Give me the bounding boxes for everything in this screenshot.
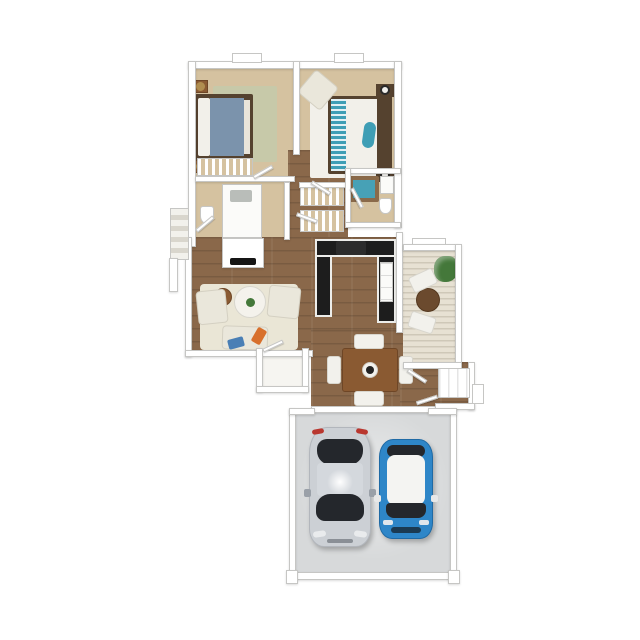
living-room-armchair-left [195, 289, 228, 326]
dining-chair-top [354, 334, 384, 349]
garage-door-post-right [448, 570, 460, 584]
blue-car-roof-panel [387, 455, 425, 505]
wall-garage-bottom [289, 572, 457, 580]
wall-garage-left [289, 408, 296, 580]
kitchen-counter-left [315, 255, 332, 317]
blue-car-mirror-left [374, 495, 381, 502]
entry-closet [438, 368, 470, 398]
garage-door-post-left [286, 570, 298, 584]
wall-kitchen-right [396, 232, 403, 333]
exterior-steps-railing [169, 258, 178, 292]
living-room-armchair-right [266, 284, 301, 319]
dining-chair-bottom [354, 391, 384, 406]
blue-car-windshield [386, 503, 426, 518]
bedroom-1-pillows [198, 98, 210, 156]
wall-bedroom-divider [293, 61, 300, 155]
wall-right-upper [394, 61, 402, 228]
wall-living-bottom [185, 350, 313, 357]
coffee-table-plant [246, 298, 255, 307]
dining-centerpiece [366, 366, 374, 374]
sedan-rear-window [317, 439, 363, 465]
bathroom-2-toilet [379, 198, 392, 214]
wall-bathroom-2-bottom [345, 222, 401, 228]
bedroom-1-foot-blanket [244, 100, 250, 154]
wall-bathroom-2-left [345, 168, 351, 228]
sedan-mirror-left [304, 489, 311, 497]
bathroom-1-sink [230, 190, 252, 202]
wall-patio-top [403, 244, 459, 251]
blue-compact-car [379, 439, 433, 539]
bathroom-2-vanity [380, 176, 394, 194]
blue-car-headlight-left [383, 520, 393, 525]
fireplace-opening [230, 258, 256, 265]
wall-dining-bottom [311, 406, 437, 413]
blue-car-headlight-right [419, 520, 429, 525]
wall-left-upper [188, 61, 196, 247]
wall-garage-top-right [428, 408, 457, 415]
kitchen-stove [336, 241, 366, 255]
bedroom-1-duvet [210, 98, 244, 156]
silver-sedan [309, 427, 371, 547]
wall-garage-top-left [289, 408, 315, 415]
wall-patio-right [455, 244, 462, 369]
entry-exterior-step [472, 384, 484, 404]
floor-plan-canvas [0, 0, 640, 640]
wall-bedroom-2-bottom [299, 182, 351, 188]
window-bedroom-1 [232, 53, 262, 63]
wall-bathroom-1-right [284, 182, 290, 240]
window-bedroom-2 [334, 53, 364, 63]
kitchen-appliance-stack [380, 262, 393, 302]
exterior-steps-left [170, 208, 189, 260]
patio-table [416, 288, 440, 312]
wall-bedroom-1-bottom [195, 176, 295, 182]
sedan-roof-glare [327, 469, 353, 495]
sedan-grille [327, 539, 353, 543]
wall-bathroom-2-top [345, 168, 401, 174]
blue-car-mirror-right [431, 495, 438, 502]
laundry-floor [258, 352, 308, 390]
wall-laundry-bottom [256, 386, 309, 393]
bedroom-2-striped-blanket [331, 99, 346, 171]
bedroom-1-lamp-top [196, 82, 205, 91]
dining-chair-left [327, 356, 341, 384]
blue-car-grille [391, 527, 421, 533]
bedroom-2-headboard [377, 96, 392, 174]
bedroom-2-lamp-top [380, 85, 390, 95]
hall-closet-bottom [300, 210, 344, 232]
sedan-windshield [316, 494, 364, 521]
bedroom-1-closet-clothes [197, 158, 253, 176]
wall-garage-right [450, 408, 457, 580]
